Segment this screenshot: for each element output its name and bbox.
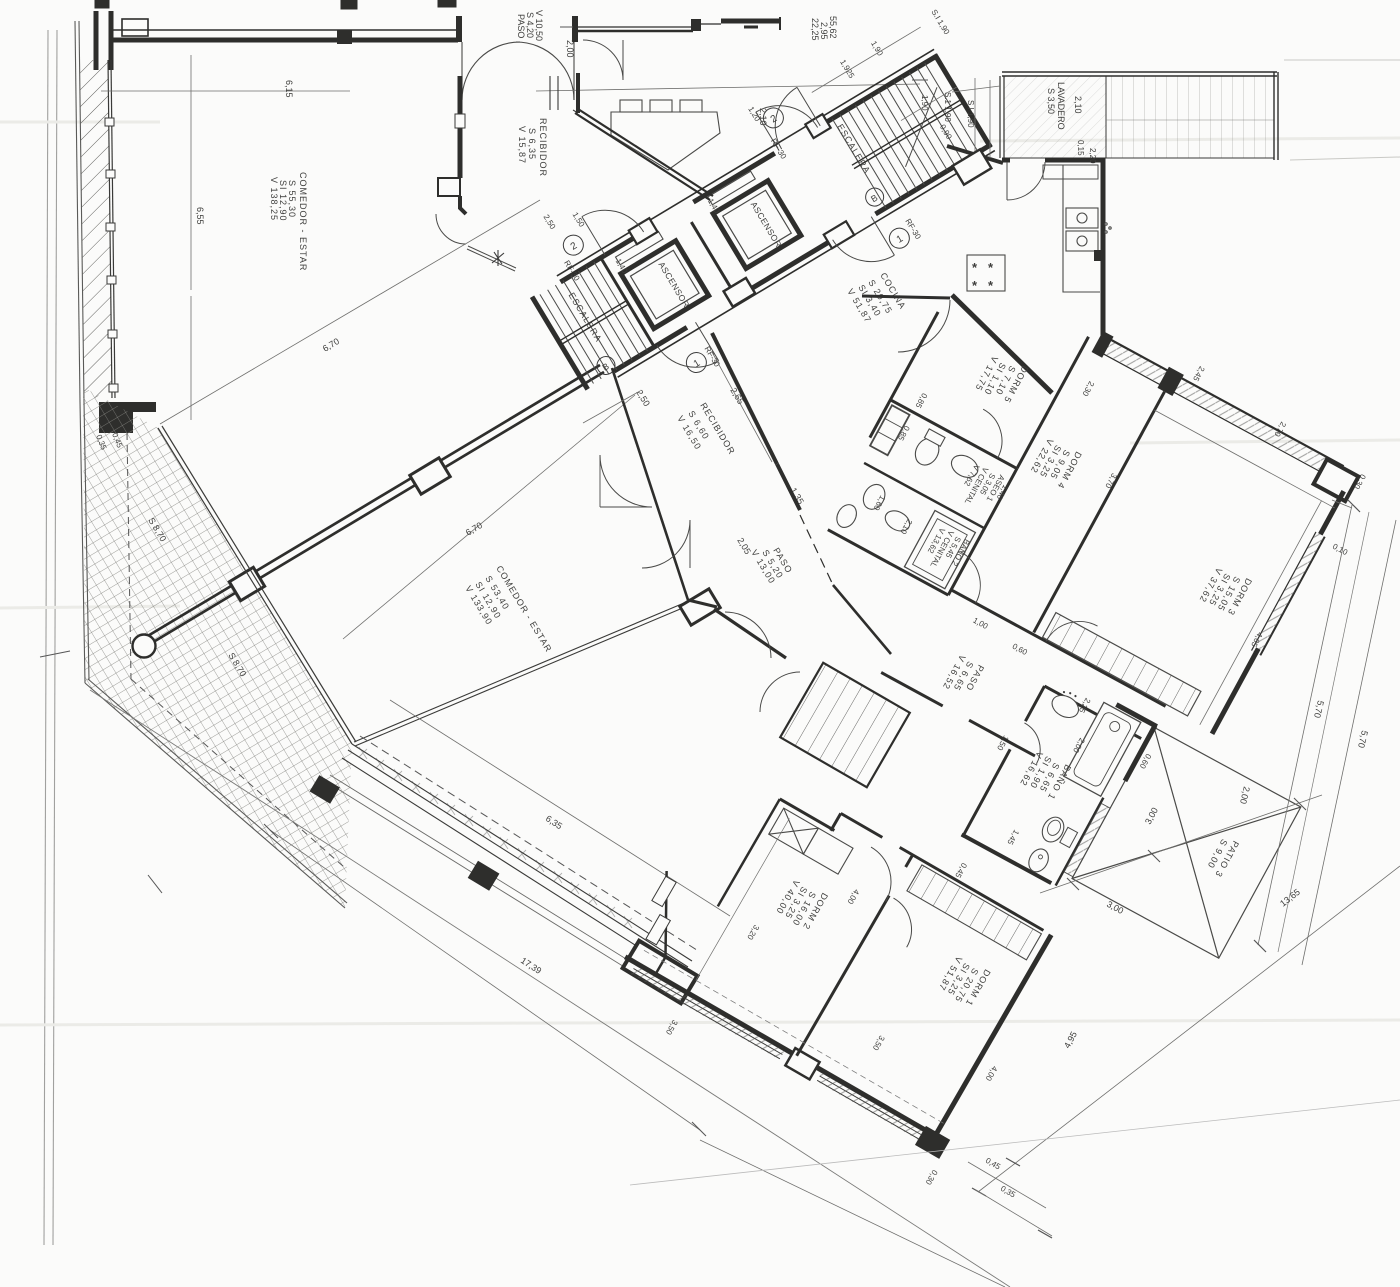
svg-text:4,00: 4,00 (845, 888, 861, 906)
svg-text:3,50: 3,50 (871, 1034, 887, 1052)
svg-text:13,65: 13,65 (1278, 887, 1302, 909)
svg-text:S.1 1,90: S.1 1,90 (943, 92, 952, 122)
svg-text:*: * (972, 260, 978, 275)
svg-text:2,10: 2,10 (1073, 96, 1083, 114)
svg-text:1: 1 (895, 233, 906, 246)
svg-text:COMEDOR - ESTAR: COMEDOR - ESTAR (298, 172, 308, 271)
svg-text:6,55: 6,55 (195, 207, 205, 225)
svg-text:2,50: 2,50 (542, 213, 558, 231)
svg-text:0,60: 0,60 (1011, 642, 1029, 658)
svg-text:2,20: 2,20 (1088, 148, 1097, 164)
svg-text:1,50: 1,50 (571, 211, 587, 229)
svg-text:3,00: 3,00 (1143, 806, 1160, 826)
svg-text:S 4,20: S 4,20 (525, 12, 535, 38)
svg-text:V 15,87: V 15,87 (517, 126, 527, 164)
svg-text:3,00: 3,00 (1105, 899, 1125, 916)
svg-text:2,95: 2,95 (819, 22, 829, 40)
svg-text:ESCALERA: ESCALERA (835, 122, 872, 175)
svg-text:V 138,25: V 138,25 (269, 177, 279, 221)
svg-text:6,70: 6,70 (321, 336, 341, 354)
svg-text:0,35: 0,35 (999, 1184, 1017, 1200)
svg-text:PASO: PASO (516, 14, 526, 38)
svg-text:2: 2 (569, 240, 580, 253)
svg-text:S 6,35: S 6,35 (527, 128, 537, 160)
svg-text:22,25: 22,25 (810, 18, 820, 41)
svg-text:3,50: 3,50 (664, 1018, 680, 1036)
svg-text:2,00: 2,00 (565, 40, 575, 58)
svg-text:6,70: 6,70 (464, 520, 484, 538)
svg-text:4,00: 4,00 (983, 1064, 999, 1082)
svg-text:0,15: 0,15 (1076, 140, 1085, 156)
svg-text:0,45: 0,45 (953, 861, 969, 879)
svg-text:2,45: 2,45 (1191, 365, 1207, 383)
svg-text:2,65: 2,65 (728, 386, 746, 406)
svg-text:2,30: 2,30 (1080, 380, 1096, 398)
svg-text:S.I 1,90: S.I 1,90 (929, 8, 951, 37)
svg-text:1: 1 (692, 358, 703, 371)
svg-text:0,30: 0,30 (923, 1168, 939, 1186)
svg-text:*: * (988, 260, 994, 275)
svg-text:B: B (869, 192, 880, 204)
svg-text:2,50: 2,50 (634, 388, 652, 408)
svg-text:1,925: 1,925 (838, 58, 856, 80)
svg-text:2: 2 (769, 113, 780, 126)
svg-text:1,00: 1,00 (971, 616, 989, 632)
svg-text:RF-30: RF-30 (903, 217, 922, 241)
svg-text:1,90: 1,90 (869, 39, 885, 57)
svg-text:5,70: 5,70 (1356, 730, 1370, 749)
svg-text:RECIBIDOR: RECIBIDOR (538, 118, 548, 177)
svg-text:6,35: 6,35 (544, 813, 564, 831)
svg-text:1,90: 1,90 (920, 95, 929, 111)
svg-text:5,70: 5,70 (1312, 700, 1326, 719)
svg-text:0,85: 0,85 (913, 391, 929, 409)
svg-text:6,15: 6,15 (284, 80, 294, 98)
svg-text:0,45: 0,45 (984, 1156, 1002, 1172)
svg-text:3,70: 3,70 (1103, 472, 1119, 490)
svg-text:1,45: 1,45 (1005, 828, 1021, 846)
svg-text:V 10,50: V 10,50 (534, 10, 544, 41)
svg-text:4,95: 4,95 (1062, 1030, 1079, 1050)
svg-text:2,00: 2,00 (1238, 786, 1252, 805)
svg-text:S 3,50: S 3,50 (1046, 88, 1056, 114)
svg-text:S.I 1,90: S.I 1,90 (966, 100, 975, 128)
svg-text:55,62: 55,62 (828, 16, 838, 39)
svg-text:B: B (601, 360, 612, 372)
svg-text:3,20: 3,20 (745, 923, 761, 941)
svg-text:LAVADERO: LAVADERO (1056, 82, 1066, 130)
svg-text:17,39: 17,39 (519, 955, 543, 976)
svg-text:0,10: 0,10 (1331, 542, 1349, 558)
